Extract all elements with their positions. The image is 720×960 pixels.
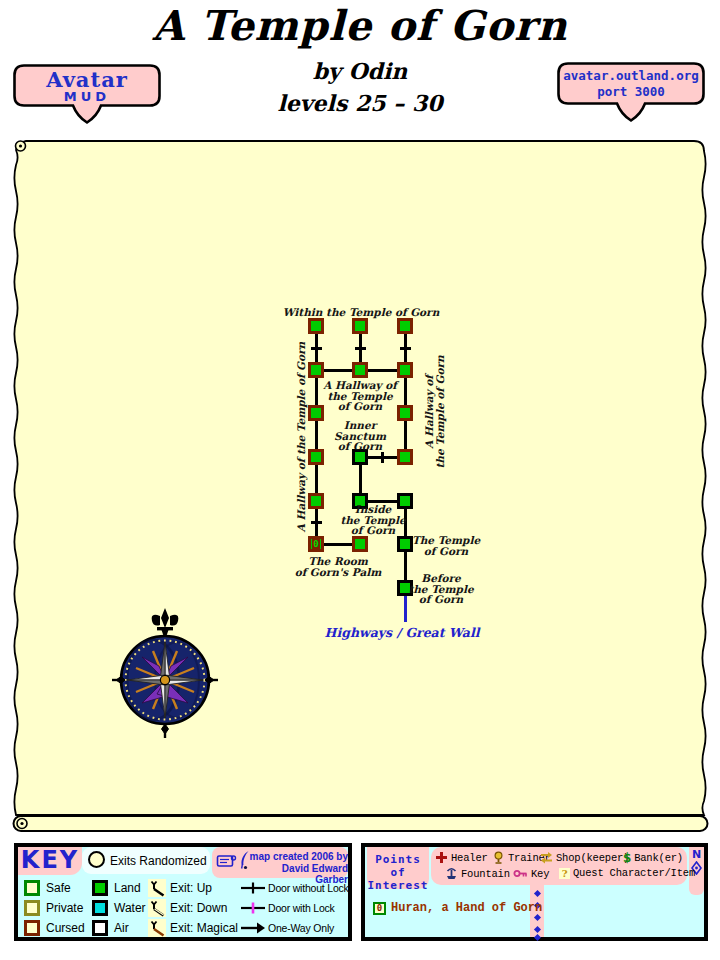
- north-label: N: [689, 848, 704, 861]
- poi-entry-huran: 0 Huran, a Hand of Gorn: [373, 901, 542, 915]
- compass-hub: [160, 675, 169, 684]
- door-marker: [355, 347, 366, 350]
- map-room: [308, 449, 324, 465]
- map-room: [308, 318, 324, 334]
- legend-fountain: Fountain: [445, 867, 510, 880]
- map-label: Beforethe Templeof Gorn: [408, 573, 473, 605]
- key-legend-box: KEY Exits Randomized map created 2006 by…: [14, 843, 352, 941]
- quest-character-icon: 0: [373, 902, 386, 915]
- exit-down-label: Exit: Down: [170, 901, 227, 915]
- map-room: [308, 362, 324, 378]
- private-label: Private: [46, 901, 83, 915]
- map-layer: 0Within the Temple of GornA Hallway ofth…: [0, 0, 720, 960]
- legend-healer: Healer: [435, 851, 488, 864]
- air-label: Air: [114, 921, 129, 935]
- poi-title: Points of Interest: [367, 847, 429, 889]
- poi-entry-label: Huran, a Hand of Gorn: [391, 901, 542, 915]
- door-marker: [381, 452, 384, 463]
- door-without-lock-icon: [240, 881, 266, 895]
- legend-key: Key: [513, 867, 549, 880]
- map-label: The Templeof Gorn: [412, 535, 480, 556]
- map-label: A Hallway of the Temple of Gorn: [296, 342, 307, 532]
- door-without-lock-label: Door without Lock: [268, 882, 349, 894]
- quest-character-marker: 0: [312, 539, 320, 549]
- door-marker: [311, 521, 322, 524]
- exit-magical-label: Exit: Magical: [170, 921, 238, 935]
- map-label: A Hallway ofthe Temple of Gorn: [424, 355, 445, 468]
- compass-rose: [111, 604, 219, 740]
- map-room: [352, 318, 368, 334]
- legend-banker: $ Bank(er): [623, 851, 683, 865]
- cursed-swatch: [24, 920, 40, 936]
- private-swatch: [24, 900, 40, 916]
- map-room: 0: [308, 536, 324, 552]
- one-way-only-icon: [240, 921, 266, 935]
- exit-up-icon: [148, 879, 166, 897]
- land-swatch: [92, 880, 108, 896]
- exits-randomized-icon: [88, 851, 105, 868]
- land-label: Land: [114, 881, 141, 895]
- points-of-interest-box: Points of Interest N Healer Trainer Shop…: [361, 843, 708, 941]
- door-marker: [400, 347, 411, 350]
- safe-swatch: [24, 880, 40, 896]
- door-with-lock-label: Door with Lock: [268, 902, 335, 914]
- cursed-label: Cursed: [46, 921, 85, 935]
- door-with-lock-icon: [240, 901, 266, 915]
- map-label: A Hallway ofthe Templeof Gorn: [323, 380, 397, 412]
- water-label: Water: [114, 901, 146, 915]
- exit-magical-icon: [148, 919, 166, 937]
- map-room: [352, 362, 368, 378]
- map-room: [308, 405, 324, 421]
- quest-question-icon: ?: [559, 868, 570, 879]
- map-label: The Roomof Gorn's Palm: [295, 556, 382, 577]
- map-room: [352, 536, 368, 552]
- water-swatch: [92, 900, 108, 916]
- map-room: [397, 405, 413, 421]
- map-label: Insidethe Templeof Gorn: [340, 504, 405, 536]
- highway-label: Highways / Great Wall: [325, 628, 480, 639]
- map-room: [397, 536, 413, 552]
- bank-dollar-icon: $: [623, 851, 631, 865]
- legend-quest: ? Quest Character/Item: [559, 867, 695, 879]
- scroll-icon: [216, 853, 238, 869]
- map-room: [397, 318, 413, 334]
- safe-label: Safe: [46, 881, 71, 895]
- legend-shopkeeper: Shop(keeper): [540, 851, 629, 864]
- map-room: [397, 362, 413, 378]
- door-marker: [311, 347, 322, 350]
- exit-up-label: Exit: Up: [170, 881, 212, 895]
- map-label: InnerSanctumof Gorn: [334, 420, 386, 452]
- exits-randomized-label: Exits Randomized: [110, 854, 207, 868]
- map-label: Within the Temple of Gorn: [283, 307, 440, 318]
- map-room: [397, 449, 413, 465]
- map-room: [308, 493, 324, 509]
- shop-arrows-icon: [540, 851, 553, 864]
- fountain-icon: [445, 867, 458, 880]
- air-swatch: [92, 920, 108, 936]
- healer-cross-icon: [435, 851, 448, 864]
- trainer-icon: [492, 851, 505, 864]
- key-icon: [513, 867, 528, 880]
- exit-down-icon: [148, 899, 166, 917]
- key-title: KEY: [18, 847, 82, 875]
- one-way-only-label: One-Way Only: [268, 922, 334, 934]
